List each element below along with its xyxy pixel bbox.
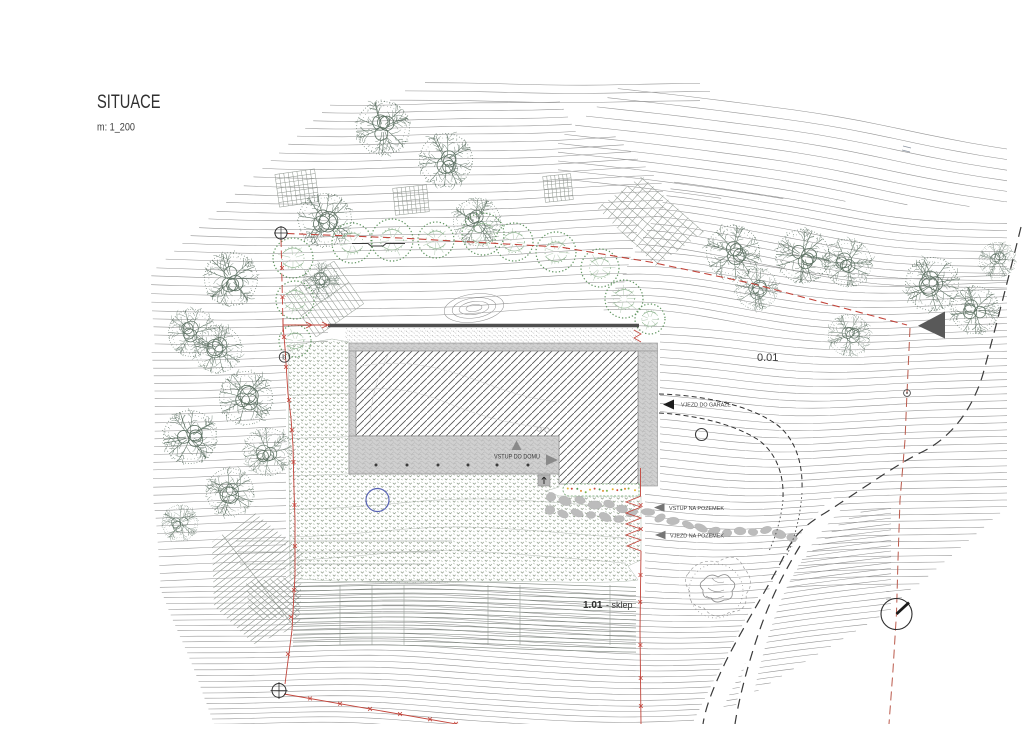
svg-text:VJEZD DO GARÁŽE: VJEZD DO GARÁŽE xyxy=(681,401,731,409)
svg-text:b: b xyxy=(282,355,286,362)
svg-text:1.01: 1.01 xyxy=(583,600,603,611)
svg-text:VSTUP DO DOMU: VSTUP DO DOMU xyxy=(494,455,540,461)
svg-text:VJEZD NA POZEMEK: VJEZD NA POZEMEK xyxy=(670,534,724,540)
svg-text:m: 1_200: m: 1_200 xyxy=(97,121,135,133)
svg-text:SITUACE: SITUACE xyxy=(97,91,161,113)
svg-text:0.01: 0.01 xyxy=(757,352,778,364)
svg-text:- sklep: - sklep xyxy=(606,600,633,610)
svg-text:VSTUP NA POZEMEK: VSTUP NA POZEMEK xyxy=(669,506,724,512)
